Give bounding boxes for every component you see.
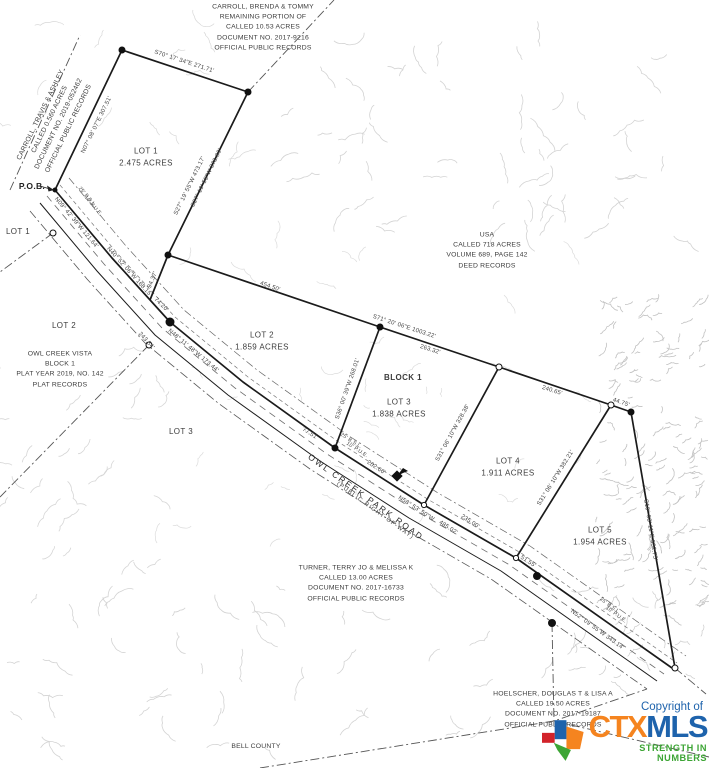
dim-44: 44.75' xyxy=(612,397,630,408)
bearing-lot5-east: S10° 03' 11"E 532.75' xyxy=(642,499,658,561)
block1-label: BLOCK 1 xyxy=(384,372,422,384)
dim-94: 94.37' xyxy=(147,271,159,289)
pue-label-1: 10' P.U.E. xyxy=(83,195,103,218)
adjacent-lot2-label: LOT 2 xyxy=(52,320,76,332)
dim-77: 77.51' xyxy=(301,427,319,441)
logo-mls-text: MLS xyxy=(646,709,707,744)
ctxmls-texas-icon xyxy=(542,719,587,763)
dim-51: 51.55' xyxy=(519,555,537,569)
bearing-north-line: S71° 20' 06"E 1003.22' xyxy=(372,314,437,340)
dim-454: 454.50' xyxy=(259,281,281,293)
road-row-label: (PUBLIC RIGHT-OF-WAY) xyxy=(335,481,414,541)
dim-202: 202.66' xyxy=(366,460,387,476)
owner-carroll-brenda: CARROLL, BRENDA & TOMMY REMAINING PORTIO… xyxy=(212,3,314,54)
lot5-label: LOT 5 1.954 ACRES xyxy=(573,525,627,550)
bearing-road-2: N40° 52' 06"W 168.15' xyxy=(105,246,153,298)
pob-label: P.O.B. xyxy=(19,181,45,191)
county-label: BELL COUNTY xyxy=(231,742,280,752)
owner-turner: TURNER, TERRY JO & MELISSA K CALLED 13.0… xyxy=(299,564,414,605)
bearing-road-3: N48° 11' 48"W 173.44' xyxy=(167,328,220,374)
bearing-lot4-lot5: S31° 06' 10"W 382.21' xyxy=(536,449,575,507)
lot4-label: LOT 4 1.911 ACRES xyxy=(481,456,534,481)
map-labels-layer: CARROLL, BRENDA & TOMMY REMAINING PORTIO… xyxy=(0,0,709,768)
bearing-lot3-lot4: S31° 06' 10"W 328.38' xyxy=(435,404,471,463)
dim-74: 74.20' xyxy=(153,297,170,314)
owner-usa: USA CALLED 718 ACRES VOLUME 689, PAGE 14… xyxy=(446,231,527,272)
dim-485: 485.02' xyxy=(438,520,459,536)
owner-owl-creek-vista: OWL CREEK VISTA BLOCK 1 PLAT YEAR 2019, … xyxy=(16,350,103,391)
owner-carroll-travis: CARROLL, TRAVIS & ASHLEY CALLED 0.560 AC… xyxy=(15,68,95,176)
logo-ctx-text: CTX xyxy=(589,709,647,744)
dim-263: 263.32' xyxy=(419,344,441,356)
plat-map: CARROLL, BRENDA & TOMMY REMAINING PORTIO… xyxy=(0,0,709,768)
lot1-label: LOT 1 2.475 ACRES xyxy=(119,146,173,171)
bearing-lot1-north: S70° 17' 34"E 271.71' xyxy=(153,50,214,75)
bearing-lot2-lot3: S36° 00' 39"W 268.01' xyxy=(335,358,362,421)
dim-243: 243.54' xyxy=(137,331,155,351)
lot2-label: LOT 2 1.859 ACRES xyxy=(235,330,289,355)
adjacent-lot3-label: LOT 3 xyxy=(169,426,193,438)
lot3-label: LOT 3 1.838 ACRES xyxy=(372,397,426,422)
ctxmls-logo: Copyright of CTXMLS STRENGTH IN NUMBERS xyxy=(542,701,707,763)
dim-240: 240.65' xyxy=(541,385,563,397)
logo-tagline: STRENGTH IN NUMBERS xyxy=(588,743,707,763)
adjacent-lot1-label: LOT 1 xyxy=(6,226,30,238)
dim-235: 235.00' xyxy=(460,514,481,530)
